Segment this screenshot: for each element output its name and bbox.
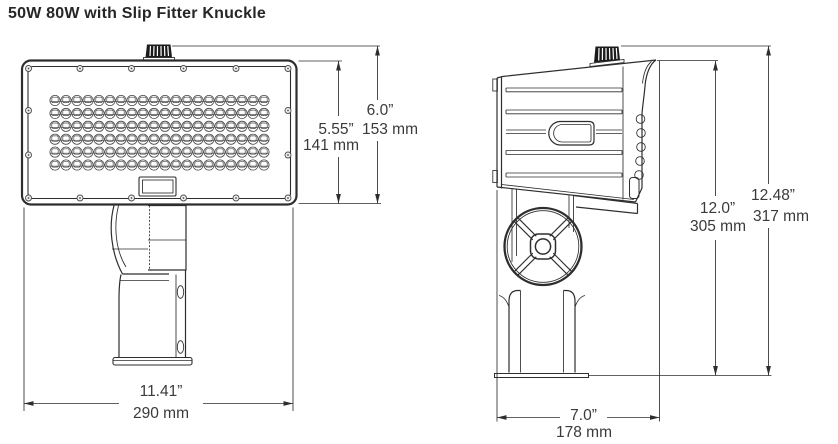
dim-side-overall-height-in: 12.48” <box>751 187 795 205</box>
dim-front-width-mm: 290 mm <box>133 405 189 423</box>
led-array <box>50 95 269 170</box>
handle-cutout <box>549 122 594 146</box>
photocell-knob-front <box>144 45 175 62</box>
slip-fitter-pole <box>495 291 589 378</box>
housing-side <box>493 60 656 202</box>
dim-front-housing-height-mm: 141 mm <box>303 137 359 155</box>
wheel-spokes <box>515 218 572 275</box>
knuckle-wheel <box>505 208 582 285</box>
panel-frame <box>22 61 297 205</box>
base-flange-side <box>495 374 589 378</box>
base-flange-front <box>113 358 192 366</box>
dim-side-depth-in: 7.0” <box>570 407 597 425</box>
dim-side-overall-height-mm: 317 mm <box>753 208 809 226</box>
nameplate <box>139 177 176 196</box>
hinge-bumps <box>635 115 646 180</box>
dim-side-mount-height-in: 12.0” <box>700 200 735 218</box>
front-view-figure <box>22 45 381 412</box>
dim-side-mount-height-mm: 305 mm <box>690 218 746 236</box>
screws <box>26 66 292 202</box>
dim-front-overall-height-mm: 153 mm <box>362 121 418 139</box>
dim-side-depth-mm: 178 mm <box>556 424 612 442</box>
dim-front-housing-height-in: 5.55” <box>318 121 353 139</box>
mounting-knuckle-front <box>111 206 192 366</box>
dim-front-width-in: 11.41” <box>140 383 183 401</box>
technical-drawing: 50W 80W with Slip Fitter Knuckle <box>0 0 838 444</box>
dim-front-overall-height-in: 6.0” <box>367 102 394 120</box>
dimension-lines-front <box>24 46 381 411</box>
